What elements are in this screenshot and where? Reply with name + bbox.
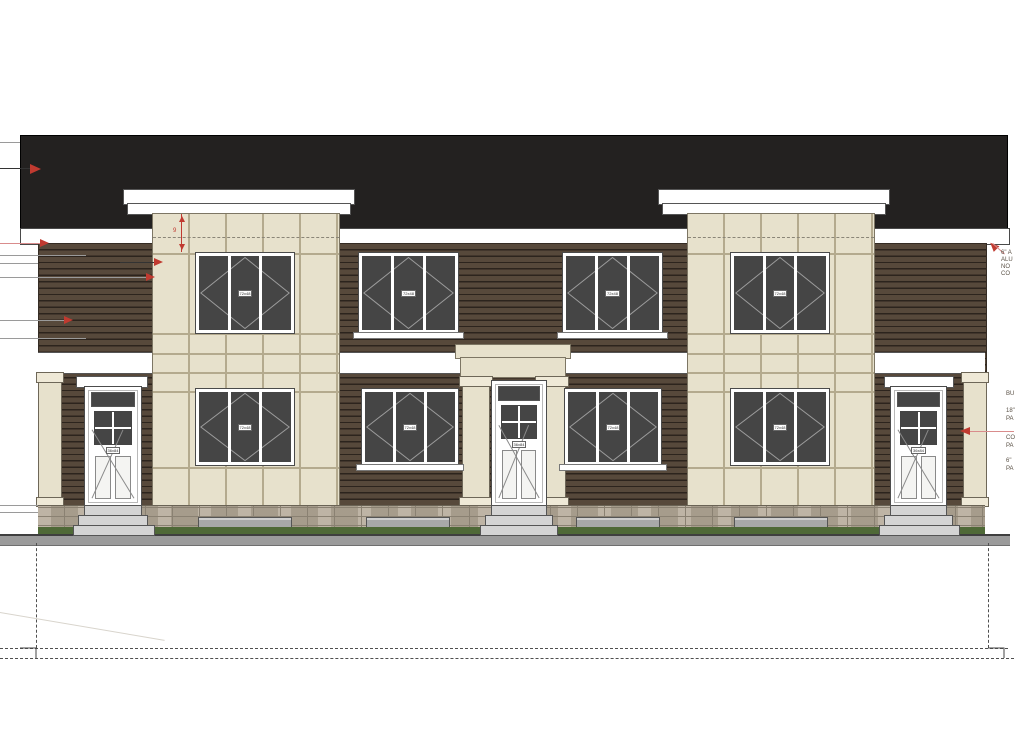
markup-arrow xyxy=(146,273,155,281)
pilaster-capital xyxy=(961,372,989,383)
window-mid-lower-right: 72x48 xyxy=(564,388,662,466)
window-mullion xyxy=(424,392,427,462)
window-mullion xyxy=(259,392,262,462)
datum-dashed-line xyxy=(0,658,1014,659)
leader-line xyxy=(0,243,40,244)
annotation-right-top: 6" A ALU NO CO xyxy=(1001,250,1013,278)
window-sill xyxy=(353,332,464,339)
door-size-label: 36x84 xyxy=(106,447,121,454)
entry-door-left: 36x84 xyxy=(84,386,142,507)
door-swing-lines xyxy=(495,401,543,502)
window-size-label: 72x48 xyxy=(401,290,416,297)
markup-arrow xyxy=(154,258,163,266)
window-mid-upper-right: 72x48 xyxy=(562,252,663,334)
window-tower-left-upper: 72x48 xyxy=(195,252,295,334)
window-mullion xyxy=(596,392,599,462)
window-size-label: 72x48 xyxy=(606,424,621,431)
datum-line xyxy=(0,263,38,264)
floor-band-right xyxy=(873,352,985,374)
markup-arrow xyxy=(30,164,41,174)
markup-arrow xyxy=(40,239,49,247)
window-mullion xyxy=(627,392,630,462)
door-size-label: 36x84 xyxy=(512,441,527,448)
floor-band-left xyxy=(38,352,152,374)
leader-line xyxy=(970,431,1014,432)
window-mullion xyxy=(228,256,231,330)
entry-pilaster-left xyxy=(462,376,490,507)
annotation-line: BU xyxy=(1006,391,1014,398)
leader-line xyxy=(0,168,30,169)
annotation-line: PA xyxy=(1006,416,1014,423)
annotation-line: ALU xyxy=(1001,257,1013,264)
roof-edge-line xyxy=(0,142,20,143)
leader-line xyxy=(120,262,154,263)
annotation-line: 6" xyxy=(1006,458,1011,465)
window-size-label: 72x48 xyxy=(773,424,788,431)
dimension-marker xyxy=(178,214,186,252)
window-tower-left-lower: 72x48 xyxy=(195,388,295,466)
window-mullion xyxy=(794,392,797,462)
window-size-label: 72x48 xyxy=(773,290,788,297)
window-mullion xyxy=(595,256,598,330)
door-step xyxy=(879,525,960,536)
annotation-line: CO xyxy=(1001,271,1013,278)
foundation-dashed-line xyxy=(36,543,37,648)
panel-batten xyxy=(153,467,339,469)
window-size-label: 72x48 xyxy=(238,290,253,297)
window-size-label: 72x48 xyxy=(605,290,620,297)
foundation-dashed-line xyxy=(988,543,989,648)
door-size-label: 36x84 xyxy=(911,447,926,454)
dimension-arrow xyxy=(179,244,185,253)
datum-line xyxy=(0,338,86,339)
window-size-label: 72x48 xyxy=(403,424,418,431)
window-mullion xyxy=(763,256,766,330)
window-mullion xyxy=(763,392,766,462)
window-sill xyxy=(559,464,667,471)
annotation-line: 6" A xyxy=(1001,250,1013,257)
elevation-drawing: 72x48 72x48 72x48 72x48 72x48 72x48 72x4… xyxy=(0,0,1024,731)
window-size-label: 72x48 xyxy=(238,424,253,431)
entry-entablature-bottom xyxy=(460,357,566,378)
entry-door-right: 36x84 xyxy=(890,386,947,507)
datum-line xyxy=(0,512,38,513)
window-mullion xyxy=(228,392,231,462)
window-mullion xyxy=(794,256,797,330)
markup-arrow xyxy=(64,316,73,324)
window-sill xyxy=(557,332,668,339)
pilaster-capital xyxy=(459,376,493,387)
annotation-line: 18" xyxy=(1006,408,1015,415)
leader-line xyxy=(0,320,64,321)
door-step xyxy=(73,525,155,536)
entry-door-center: 36x84 xyxy=(491,380,547,507)
door-transom xyxy=(91,392,135,407)
dimension-text: 9 xyxy=(173,228,176,234)
datum-line xyxy=(0,255,86,256)
panel-batten xyxy=(688,467,874,469)
pilaster-capital xyxy=(36,372,64,383)
door-transom xyxy=(897,392,940,407)
foundation-dashed-line xyxy=(0,648,1008,649)
window-mullion xyxy=(259,256,262,330)
panel-batten xyxy=(153,372,339,374)
corner-pilaster-right xyxy=(963,372,987,507)
window-sill xyxy=(356,464,464,471)
door-swing-lines xyxy=(88,407,138,502)
window-mullion xyxy=(627,256,630,330)
panel-batten xyxy=(153,353,339,355)
annotation-line: CO xyxy=(1006,435,1015,442)
fascia-hidden-line xyxy=(688,237,874,238)
annotation-line: NO xyxy=(1001,264,1013,271)
panel-batten xyxy=(688,372,874,374)
window-mid-upper-left: 72x48 xyxy=(358,252,459,334)
datum-line xyxy=(0,505,38,506)
annotation-line: PA xyxy=(1006,443,1014,450)
grade-slope-line xyxy=(0,612,165,641)
leader-line xyxy=(0,277,146,278)
window-mullion xyxy=(423,256,426,330)
door-transom xyxy=(498,386,540,401)
annotation-line: PA xyxy=(1006,466,1014,473)
corner-pilaster-left xyxy=(38,372,62,507)
dimension-arrow xyxy=(179,213,185,222)
door-step xyxy=(480,525,558,536)
window-mid-lower-left: 72x48 xyxy=(361,388,459,466)
window-tower-right-lower: 72x48 xyxy=(730,388,830,466)
panel-batten xyxy=(688,353,874,355)
door-swing-lines xyxy=(894,407,943,502)
markup-arrow xyxy=(960,427,970,435)
window-mullion xyxy=(393,392,396,462)
window-mullion xyxy=(391,256,394,330)
window-tower-right-upper: 72x48 xyxy=(730,252,830,334)
